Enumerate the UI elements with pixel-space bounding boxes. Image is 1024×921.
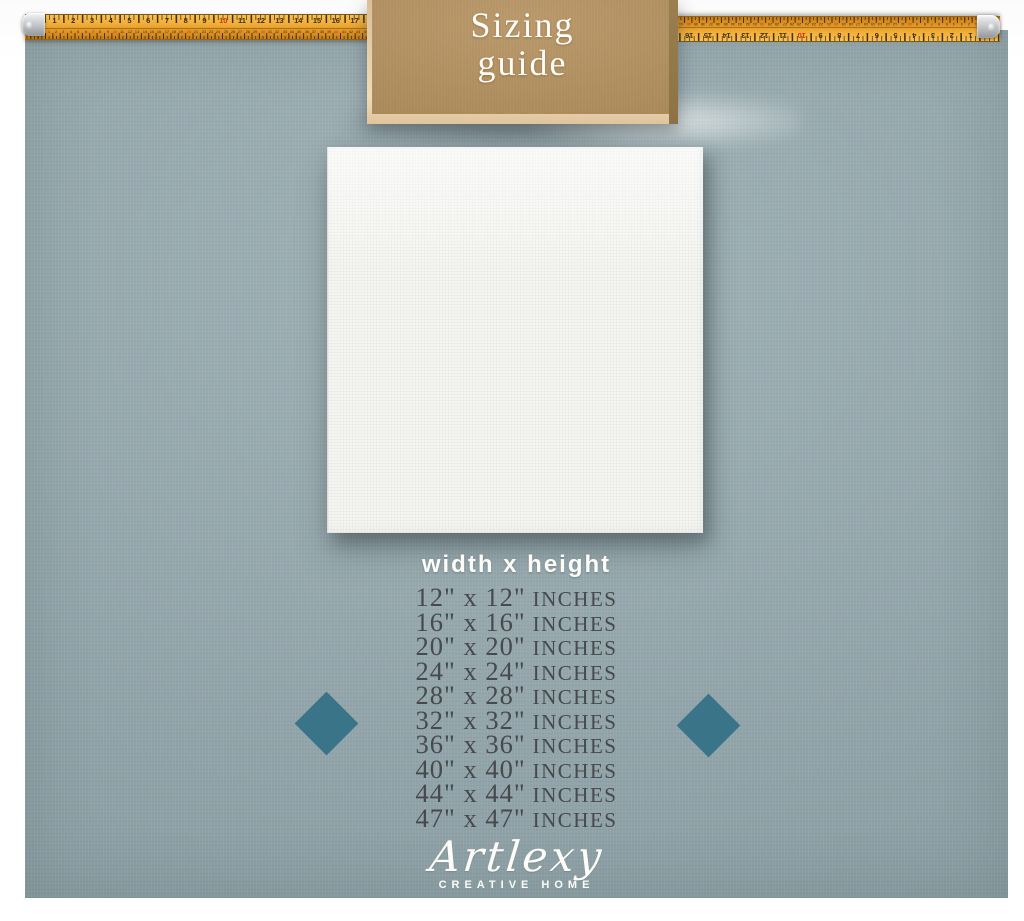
tape-cm-number: 29 xyxy=(767,22,773,26)
sizing-guide-graphic: 1234567891011121314151617123456789101112… xyxy=(0,0,1024,921)
tape-inch-number: 15 xyxy=(702,31,714,39)
tape-cm-number: 3 xyxy=(958,22,964,26)
tape-cm-number: 12 xyxy=(127,30,133,34)
tape-cm-number: 12 xyxy=(892,22,898,26)
size-unit: INCHES xyxy=(533,685,618,709)
tape-divider-line xyxy=(677,27,1000,28)
tape-inch-number: 12 xyxy=(255,17,267,25)
tape-inch-number: 2 xyxy=(946,31,958,39)
tape-cm-number: 28 xyxy=(245,30,251,34)
tape-cm-number: 6 xyxy=(936,22,942,26)
size-unit: INCHES xyxy=(533,808,618,832)
tape-cm-number: 39 xyxy=(326,30,332,34)
tape-cm-number: 21 xyxy=(193,30,199,34)
tape-inch-number: 11 xyxy=(777,31,789,39)
tape-inch-number: 10 xyxy=(796,31,808,39)
tape-cm-number: 32 xyxy=(745,22,751,26)
tape-inch-number: 9 xyxy=(199,17,211,25)
tape-cm-number: 7 xyxy=(929,22,935,26)
tape-cm-number: 13 xyxy=(134,30,140,34)
blank-canvas-preview xyxy=(327,147,703,533)
tape-cm-number: 15 xyxy=(149,30,155,34)
size-unit: INCHES xyxy=(533,783,618,807)
tape-inch-number: 10 xyxy=(217,17,229,25)
tape-inch-number: 13 xyxy=(740,31,752,39)
tape-inch-number: 13 xyxy=(274,17,286,25)
tape-cm-number: 13 xyxy=(885,22,891,26)
tape-inch-number: 15 xyxy=(311,17,323,25)
tape-cm-number: 10 xyxy=(907,22,913,26)
size-unit: INCHES xyxy=(533,734,618,758)
tape-cm-number: 41 xyxy=(678,22,684,26)
tape-inch-number: 14 xyxy=(721,31,733,39)
tape-inch-number: 7 xyxy=(852,31,864,39)
tape-cm-number: 37 xyxy=(708,22,714,26)
tape-inch-number: 6 xyxy=(142,17,154,25)
tape-cm-number: 38 xyxy=(700,22,706,26)
tape-inch-number: 17 xyxy=(349,17,361,25)
tape-cm-number: 32 xyxy=(274,30,280,34)
sizing-guide-sign: Sizing guide xyxy=(367,0,678,124)
tape-cm-number: 1 xyxy=(46,30,52,34)
tape-cm-number: 22 xyxy=(200,30,206,34)
tape-cm-number: 28 xyxy=(774,22,780,26)
tape-cm-number: 34 xyxy=(289,30,295,34)
tape-inch-number: 11 xyxy=(236,17,248,25)
tape-inch-number: 9 xyxy=(815,31,827,39)
tape-cm-number: 16 xyxy=(863,22,869,26)
tape-cm-number: 20 xyxy=(833,22,839,26)
tape-cm-number: 22 xyxy=(818,22,824,26)
tape-cm-number: 2 xyxy=(966,22,972,26)
size-unit: INCHES xyxy=(533,636,618,660)
brand-logo: Artlexy CREATIVE HOME xyxy=(25,836,1008,891)
tape-cm-number: 11 xyxy=(899,22,905,26)
brand-name: Artlexy xyxy=(427,836,605,878)
tape-cm-number: 25 xyxy=(223,30,229,34)
size-unit: INCHES xyxy=(533,587,618,611)
tape-cm-number: 18 xyxy=(171,30,177,34)
size-list: 12" x 12"INCHES16" x 16"INCHES20" x 20"I… xyxy=(25,585,1008,830)
tape-inch-number: 7 xyxy=(161,17,173,25)
tape-cm-number: 17 xyxy=(855,22,861,26)
tape-cm-number: 19 xyxy=(840,22,846,26)
sign-title: Sizing guide xyxy=(367,6,678,82)
tape-cm-number: 6 xyxy=(82,30,88,34)
tape-end-tab-icon xyxy=(22,13,45,36)
tape-cm-number: 11 xyxy=(119,30,125,34)
tape-cm-number: 30 xyxy=(259,30,265,34)
tape-inch-number: 4 xyxy=(105,17,117,25)
tape-cm-number: 18 xyxy=(848,22,854,26)
tape-cm-number: 5 xyxy=(75,30,81,34)
tape-cm-number: 27 xyxy=(237,30,243,34)
tape-cm-number: 30 xyxy=(759,22,765,26)
tape-cm-number: 29 xyxy=(252,30,258,34)
tape-cm-number: 36 xyxy=(304,30,310,34)
tape-inch-number: 16 xyxy=(330,17,342,25)
tape-cm-number: 7 xyxy=(90,30,96,34)
tape-cm-number: 24 xyxy=(215,30,221,34)
tape-cm-number: 36 xyxy=(715,22,721,26)
tape-inch-number: 2 xyxy=(67,17,79,25)
size-row: 47" x 47"INCHES xyxy=(25,806,1008,831)
sign-title-line2: guide xyxy=(367,44,678,82)
tape-inch-number: 1 xyxy=(49,17,61,25)
tape-cm-number: 31 xyxy=(752,22,758,26)
tape-inch-number: 3 xyxy=(86,17,98,25)
tape-cm-number: 26 xyxy=(230,30,236,34)
tape-cm-number: 4 xyxy=(68,30,74,34)
tape-cm-number: 39 xyxy=(693,22,699,26)
tape-inch-number: 4 xyxy=(908,31,920,39)
tape-cm-number: 5 xyxy=(944,22,950,26)
tape-cm-number: 40 xyxy=(686,22,692,26)
tape-cm-number: 9 xyxy=(914,22,920,26)
tape-cm-number: 42 xyxy=(348,30,354,34)
tape-inch-number: 12 xyxy=(758,31,770,39)
size-unit: INCHES xyxy=(533,710,618,734)
tape-inch-number: 1 xyxy=(965,31,977,39)
tape-cm-number: 35 xyxy=(296,30,302,34)
size-unit: INCHES xyxy=(533,661,618,685)
tape-inch-number: 3 xyxy=(927,31,939,39)
tape-cm-number: 8 xyxy=(97,30,103,34)
tape-cm-number: 10 xyxy=(112,30,118,34)
tape-cm-number: 4 xyxy=(951,22,957,26)
tape-cm-number: 34 xyxy=(730,22,736,26)
dimensions-subtitle: width x height xyxy=(25,551,1008,579)
tape-cm-number: 38 xyxy=(318,30,324,34)
tape-cm-number: 21 xyxy=(826,22,832,26)
tape-cm-number: 43 xyxy=(355,30,361,34)
tape-inch-number: 14 xyxy=(292,17,304,25)
tape-inch-number: 5 xyxy=(890,31,902,39)
tape-divider-line xyxy=(25,28,373,29)
size-dimensions: 47" x 47" xyxy=(416,803,526,833)
tape-end-tab-icon xyxy=(977,15,1000,38)
tape-cm-number: 9 xyxy=(105,30,111,34)
tape-cm-number: 16 xyxy=(156,30,162,34)
tape-cm-number: 27 xyxy=(781,22,787,26)
tape-cm-number: 23 xyxy=(811,22,817,26)
tape-cm-number: 25 xyxy=(796,22,802,26)
sign-title-line1: Sizing xyxy=(367,6,678,44)
tape-cm-number: 15 xyxy=(870,22,876,26)
tape-cm-number: 33 xyxy=(282,30,288,34)
tape-cm-number: 8 xyxy=(922,22,928,26)
tape-cm-number: 37 xyxy=(311,30,317,34)
tape-cm-number: 14 xyxy=(877,22,883,26)
tape-inch-number: 8 xyxy=(180,17,192,25)
tape-cm-number: 31 xyxy=(267,30,273,34)
tape-inch-number: 16 xyxy=(683,31,695,39)
tape-cm-number: 23 xyxy=(208,30,214,34)
tape-inch-number: 6 xyxy=(871,31,883,39)
tape-cm-number: 3 xyxy=(60,30,66,34)
tape-cm-number: 20 xyxy=(186,30,192,34)
tape-cm-number: 41 xyxy=(341,30,347,34)
tape-inch-number: 5 xyxy=(124,17,136,25)
tape-cm-number: 24 xyxy=(804,22,810,26)
tape-cm-number: 33 xyxy=(737,22,743,26)
measuring-tape-left: 1234567891011121314151617123456789101112… xyxy=(25,14,373,40)
measuring-tape-right: 1234567891011121314151617123456789101112… xyxy=(677,16,1000,42)
size-unit: INCHES xyxy=(533,759,618,783)
tape-cm-number: 35 xyxy=(722,22,728,26)
size-unit: INCHES xyxy=(533,612,618,636)
tape-cm-number: 40 xyxy=(333,30,339,34)
tape-cm-number: 2 xyxy=(53,30,59,34)
tape-cm-number: 19 xyxy=(178,30,184,34)
tape-inch-number: 8 xyxy=(833,31,845,39)
tape-cm-number: 17 xyxy=(164,30,170,34)
tape-cm-number: 26 xyxy=(789,22,795,26)
tape-cm-number: 14 xyxy=(141,30,147,34)
